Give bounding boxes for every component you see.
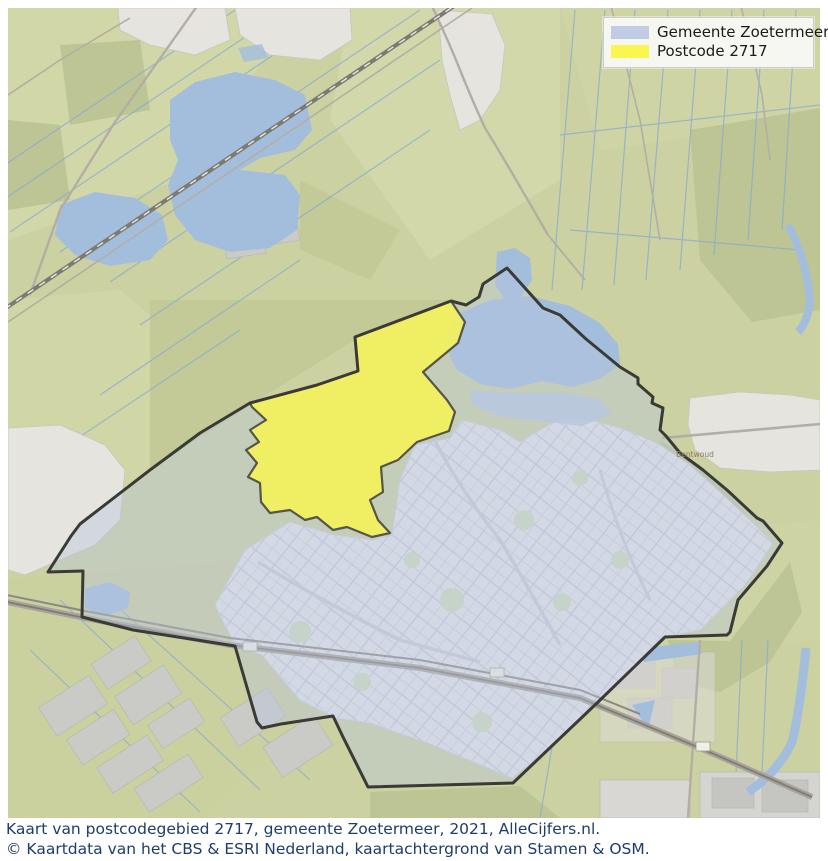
legend-swatch-gemeente [611, 26, 649, 39]
caption-attribution: © Kaartdata van het CBS & ESRI Nederland… [6, 839, 826, 859]
legend-row-gemeente: Gemeente Zoetermeer [611, 23, 806, 42]
map-canvas: Bentwoud [0, 0, 828, 818]
legend-label-gemeente: Gemeente Zoetermeer [657, 23, 828, 42]
legend-swatch-postcode [611, 45, 649, 58]
map-legend: Gemeente Zoetermeer Postcode 2717 [603, 17, 814, 68]
legend-label-postcode: Postcode 2717 [657, 42, 768, 61]
postcode-map-figure: Bentwoud Gemeente Zoetermeer Postcode 27… [0, 0, 828, 861]
map-label-bentwoud: Bentwoud [676, 450, 714, 459]
caption-title: Kaart van postcodegebied 2717, gemeente … [6, 819, 826, 839]
legend-row-postcode: Postcode 2717 [611, 42, 806, 61]
caption-block: Kaart van postcodegebied 2717, gemeente … [6, 819, 826, 859]
